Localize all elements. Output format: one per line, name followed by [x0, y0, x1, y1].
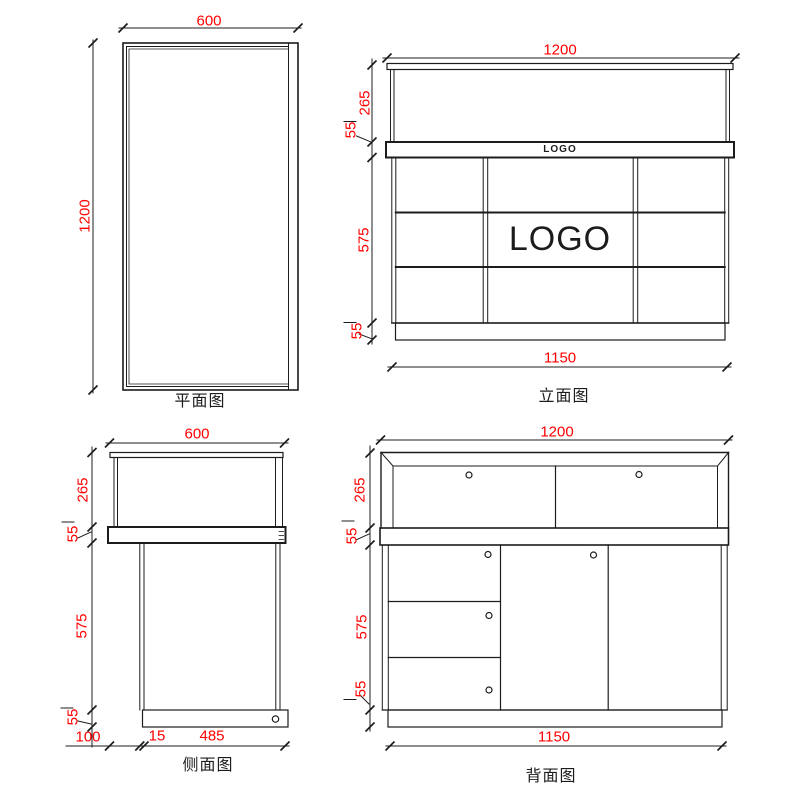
elevation-top-cap [387, 64, 733, 70]
back-door-knob-hole [636, 472, 642, 478]
side-body-depth-dimension: 485 [199, 729, 224, 744]
back-top-height-dimension: 265 [353, 477, 368, 502]
back-width-dimension: 1200 [540, 425, 573, 440]
back-body-height-dimension: 575 [355, 614, 370, 639]
elevation-body-height-dimension: 575 [357, 227, 372, 252]
elevation-view-label: 立面图 [538, 389, 589, 405]
back-base-height-dimension: 55 [354, 681, 369, 698]
technical-drawing-sheet: 600 1200 平面图 1200 265 55 575 55 1150 LOG… [0, 0, 800, 800]
plan-width-dimension: 600 [196, 14, 221, 29]
plan-view-dimensions [89, 24, 303, 395]
side-view-dimensions [61, 439, 290, 751]
back-drawer-knob-hole [485, 552, 491, 558]
elevation-bottom-width-dimension: 1150 [544, 351, 576, 366]
side-body-height-dimension: 575 [75, 613, 90, 638]
elevation-view-drawing [386, 64, 734, 341]
side-top-cap [110, 453, 283, 458]
back-corner-bevel [718, 453, 729, 467]
side-foot-hole [272, 716, 278, 722]
side-plinth [143, 710, 289, 727]
drawing-canvas [0, 0, 800, 800]
plan-view-drawing [123, 43, 298, 390]
side-counter-height-dimension: 55 [66, 526, 81, 543]
side-base-height-dimension: 55 [66, 709, 81, 726]
back-plinth [388, 710, 722, 727]
back-corner-bevel [381, 453, 393, 467]
back-view-label: 背面图 [525, 769, 576, 785]
elevation-base-height-dimension: 55 [350, 323, 365, 340]
back-counter-height-dimension: 55 [345, 528, 360, 545]
elevation-band-logo-text: LOGO [543, 145, 576, 155]
side-width-dimension: 600 [184, 427, 209, 442]
plan-height-dimension: 1200 [78, 199, 93, 232]
elevation-counter-height-dimension: 55 [344, 122, 359, 139]
elevation-width-dimension: 1200 [543, 43, 576, 58]
side-view-drawing [108, 453, 288, 728]
side-top-height-dimension: 265 [76, 477, 91, 502]
plan-view-label: 平面图 [174, 394, 225, 410]
side-offset-dimension: 100 [75, 730, 100, 745]
side-view-label: 侧面图 [182, 758, 233, 774]
back-door-knob-hole [591, 552, 597, 558]
elevation-top-height-dimension: 265 [358, 90, 373, 115]
back-drawer-knob-hole [486, 687, 492, 693]
back-door-knob-hole [466, 472, 472, 478]
back-view-dimensions [342, 436, 733, 751]
back-view-drawing [380, 453, 729, 728]
back-counter-band [380, 528, 729, 545]
side-gap-dimension: 15 [149, 729, 166, 744]
back-bottom-width-dimension: 1150 [538, 730, 570, 745]
back-drawer-knob-hole [486, 613, 492, 619]
elevation-plinth [396, 323, 726, 340]
side-counter-band [108, 527, 286, 543]
elevation-panel-logo-text: LOGO [509, 222, 611, 256]
